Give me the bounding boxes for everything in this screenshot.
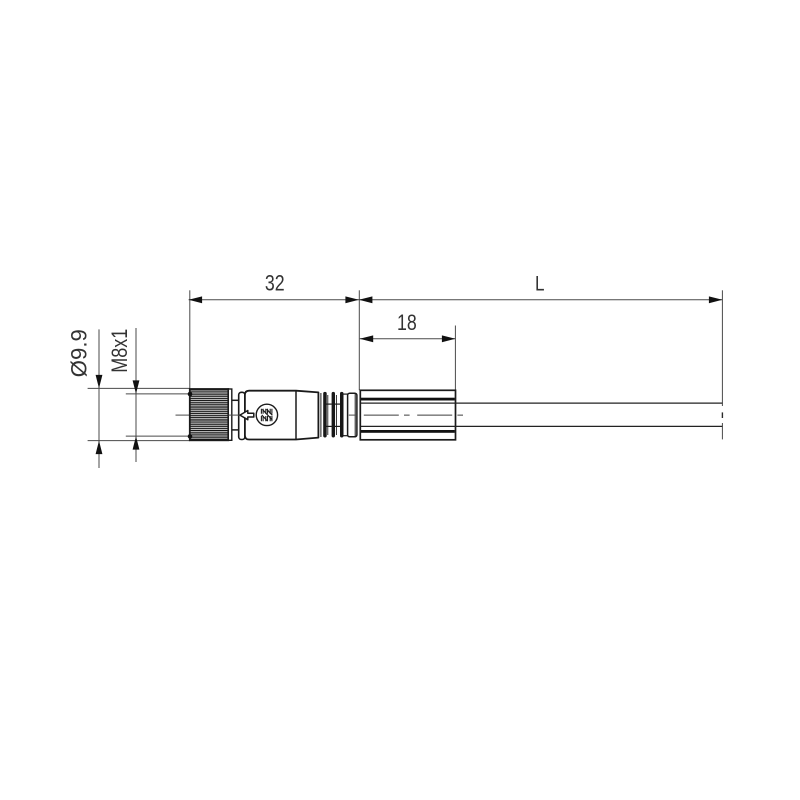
svg-text:32: 32	[265, 271, 285, 296]
svg-text:L: L	[535, 273, 545, 296]
svg-text:Ø9.9: Ø9.9	[67, 329, 92, 377]
svg-text:M8x1: M8x1	[107, 329, 132, 373]
svg-text:18: 18	[397, 310, 417, 335]
